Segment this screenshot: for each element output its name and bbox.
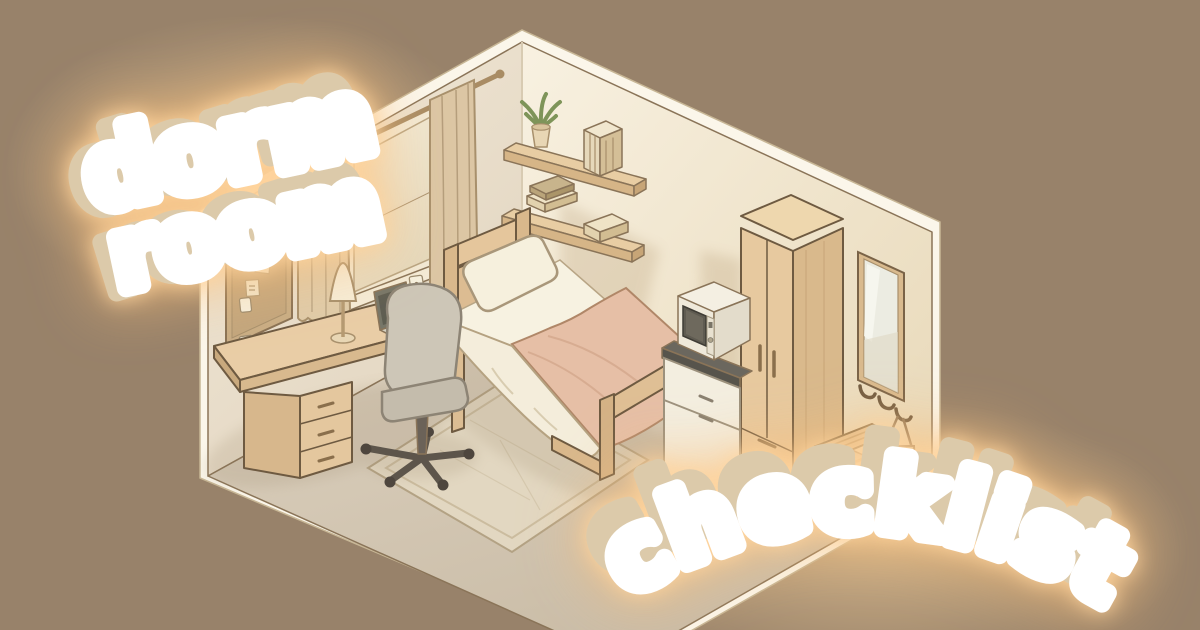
light-switch <box>239 297 251 312</box>
footboard-post-left <box>600 394 614 480</box>
social-card: dorm room dorm room checklist checklist <box>0 0 1200 630</box>
caster <box>361 444 372 455</box>
curtain-rod-finial <box>496 70 505 79</box>
books-side <box>600 129 622 176</box>
microwave-dial <box>708 338 713 343</box>
drawer-unit-front <box>300 382 352 478</box>
books-front <box>584 130 600 176</box>
mirror <box>858 252 904 401</box>
plant-pot-rim <box>532 124 550 130</box>
dorm-room-illustration: dorm room dorm room checklist checklist <box>0 0 1200 630</box>
caster <box>438 480 449 491</box>
caster <box>385 477 396 488</box>
standing-books <box>584 121 622 176</box>
caster <box>464 449 475 460</box>
drawer-unit-side <box>244 392 300 478</box>
microwave-display <box>709 322 713 328</box>
